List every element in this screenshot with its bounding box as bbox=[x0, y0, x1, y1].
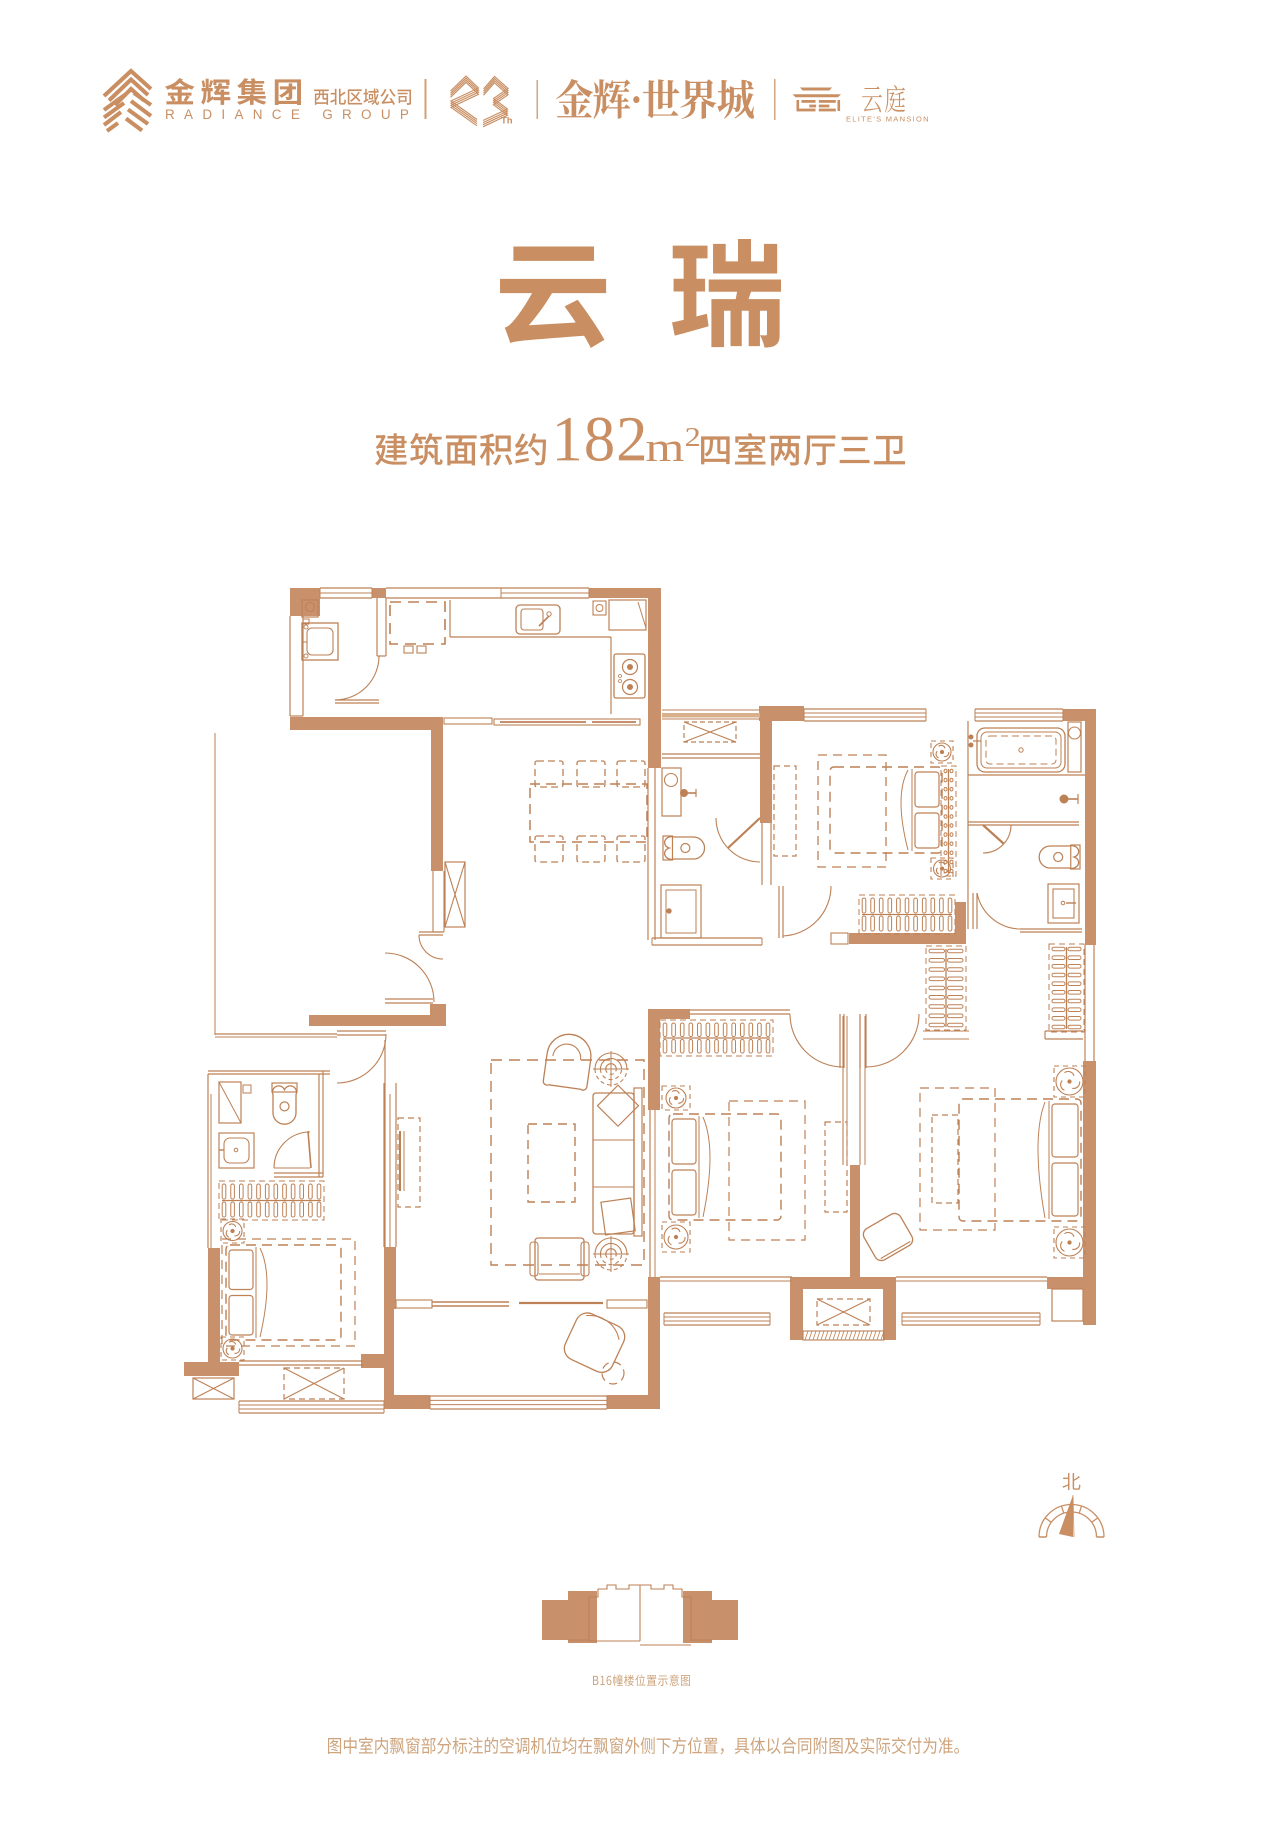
svg-text:RADIANCE GROUP: RADIANCE GROUP bbox=[165, 107, 418, 122]
svg-text:ELITE'S MANSION: ELITE'S MANSION bbox=[846, 115, 930, 124]
svg-text:Th: Th bbox=[501, 116, 513, 127]
